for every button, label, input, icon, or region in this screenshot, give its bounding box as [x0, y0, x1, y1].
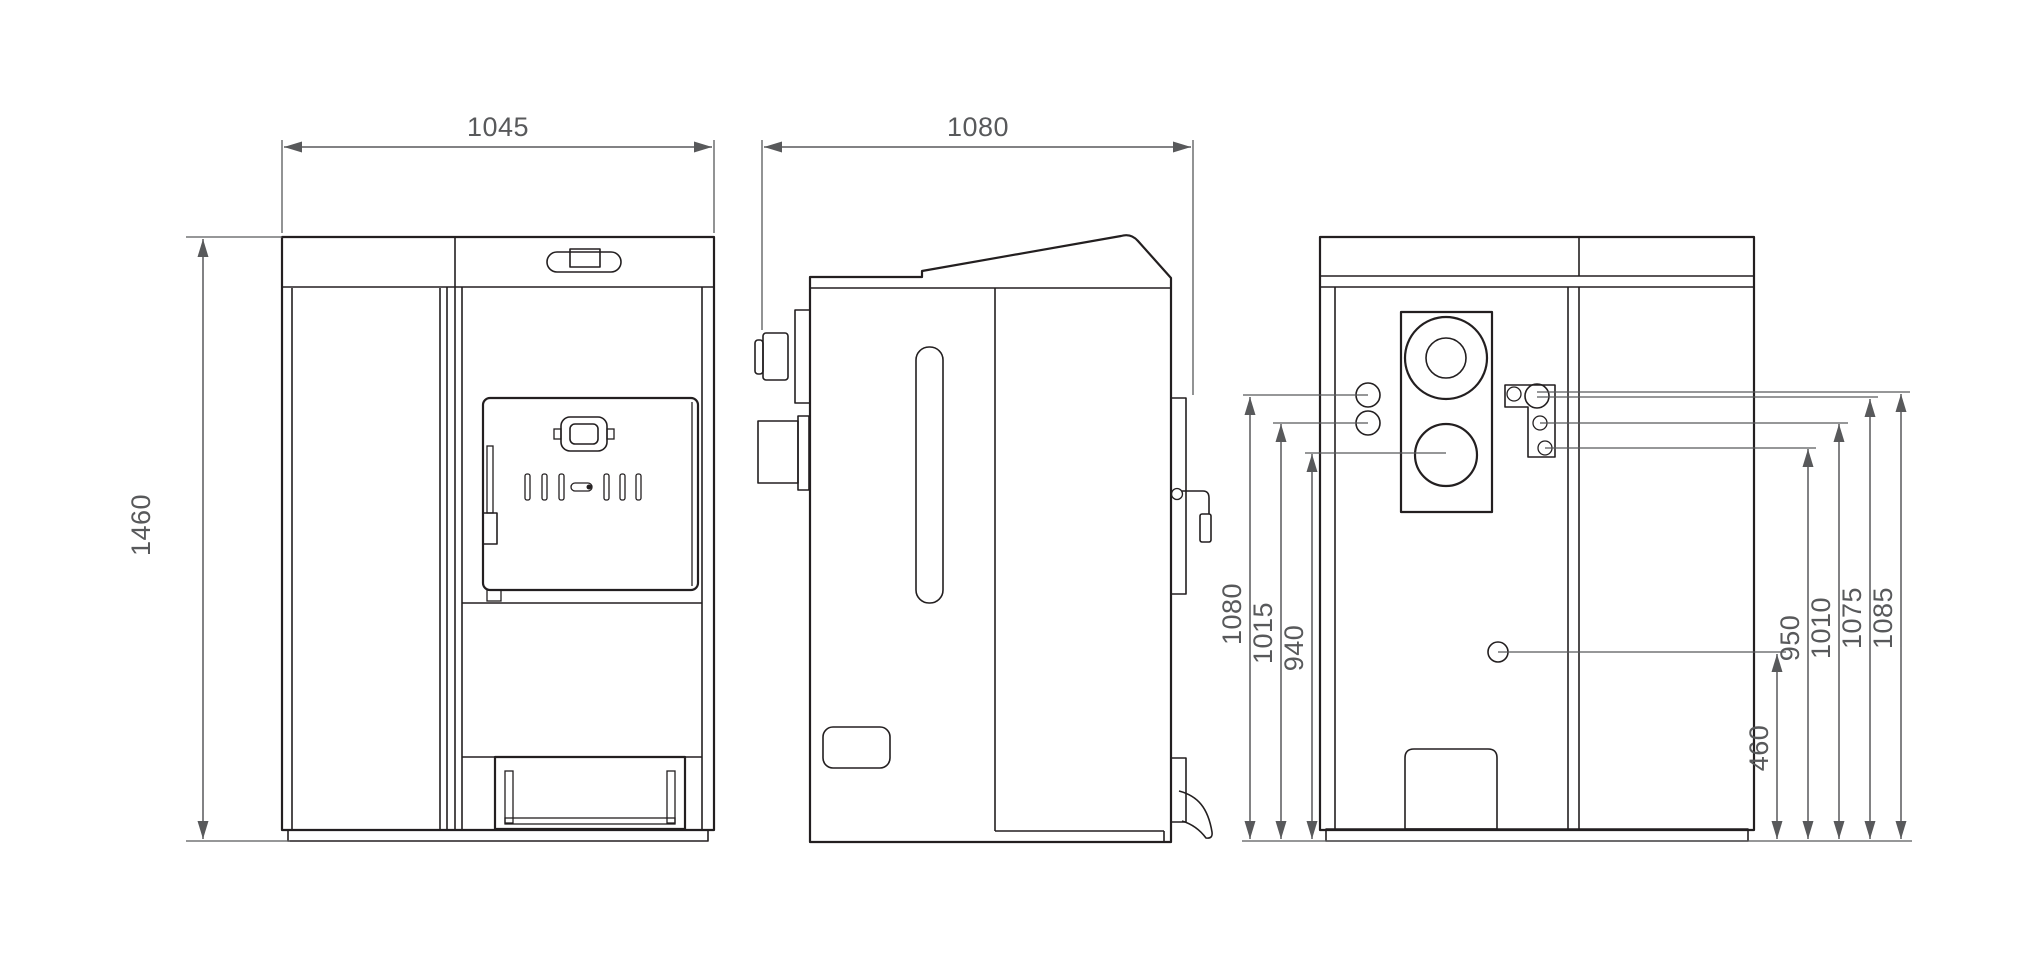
- side-depth-label: 1080: [947, 112, 1009, 142]
- front-body: [282, 237, 714, 830]
- rear-940-label: 940: [1279, 625, 1309, 672]
- front-top-control: [547, 249, 621, 272]
- rear-1015-label: 1015: [1248, 602, 1278, 664]
- flue-stub-lower: [758, 416, 809, 490]
- water-port-circle: [1415, 424, 1477, 486]
- connection-panel: [1401, 312, 1492, 512]
- fitting-bracket: [1505, 384, 1555, 457]
- flue-outlet-circle: [1405, 317, 1487, 399]
- dimension-side-depth: 1080: [762, 112, 1193, 395]
- flue-stub-upper: [755, 310, 810, 403]
- rear-1010-label: 1010: [1806, 597, 1836, 659]
- side-view: 1080: [755, 112, 1212, 842]
- rear-view: 1080 1015 940 460 950: [1217, 237, 1912, 841]
- front-width-label: 1045: [467, 112, 529, 142]
- front-base: [288, 830, 708, 841]
- rear-1080-label: 1080: [1217, 583, 1247, 645]
- dimension-rear-1085: 1085: [1868, 394, 1907, 839]
- rear-pedestal: [1405, 749, 1497, 829]
- front-height-label: 1460: [126, 494, 156, 556]
- dimension-rear-460: 460: [1744, 654, 1783, 839]
- door-handle: [554, 417, 614, 451]
- side-cleanout-plate: [823, 727, 890, 768]
- fire-door: [483, 398, 698, 590]
- ash-drawer: [495, 757, 685, 829]
- door-latch: [487, 590, 501, 601]
- door-lever: [483, 446, 497, 544]
- dimension-rear-940: 940: [1279, 454, 1318, 839]
- front-view: 1045 1460: [126, 112, 714, 841]
- rear-hinge-lower: [1171, 758, 1212, 838]
- rear-hinge-upper: [1171, 398, 1211, 594]
- side-body: [810, 235, 1171, 842]
- rear-1075-label: 1075: [1837, 587, 1867, 649]
- rear-950-label: 950: [1775, 615, 1805, 662]
- technical-drawing-page: 1045 1460: [0, 0, 2028, 961]
- dimension-front-width: 1045: [282, 112, 714, 233]
- dimension-front-height: 1460: [126, 237, 290, 841]
- rear-1085-label: 1085: [1868, 587, 1898, 649]
- boiler-three-view-drawing: 1045 1460: [0, 0, 2028, 961]
- flue-outlet-inner-circle: [1426, 338, 1466, 378]
- vent-slots: [525, 474, 641, 500]
- rear-body: [1320, 237, 1754, 830]
- rear-460-label: 460: [1744, 725, 1774, 772]
- side-slot: [916, 347, 943, 603]
